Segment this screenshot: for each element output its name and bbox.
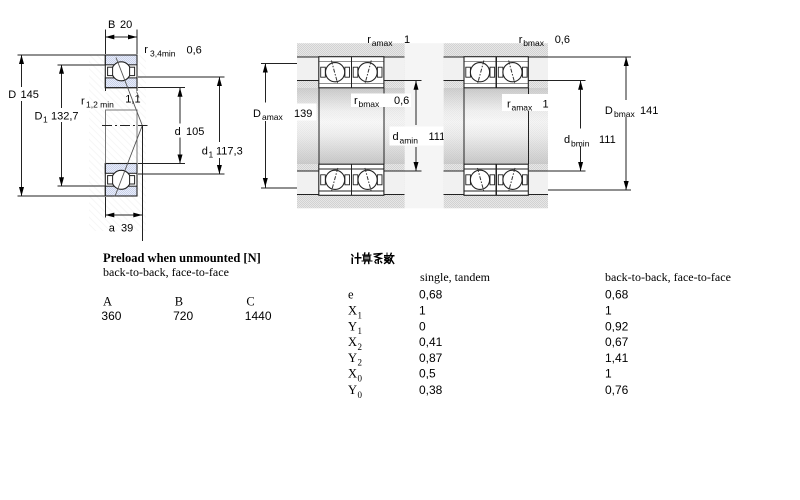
svg-text:e: e <box>348 288 354 302</box>
svg-text:bmax: bmax <box>359 99 381 109</box>
svg-text:360: 360 <box>101 309 121 323</box>
svg-text:132,7: 132,7 <box>51 111 79 123</box>
svg-text:X: X <box>348 335 357 349</box>
svg-text:0: 0 <box>358 373 363 383</box>
svg-text:amax: amax <box>262 112 284 122</box>
svg-text:1: 1 <box>605 304 612 318</box>
svg-text:single, tandem: single, tandem <box>420 270 491 284</box>
svg-text:0,41: 0,41 <box>419 335 443 349</box>
svg-text:X: X <box>348 367 357 381</box>
svg-text:Preload when unmounted [N]: Preload when unmounted [N] <box>103 251 261 265</box>
svg-text:117,3: 117,3 <box>216 146 243 158</box>
svg-text:0: 0 <box>419 319 426 333</box>
svg-text:bmax: bmax <box>523 38 545 48</box>
svg-text:d: d <box>202 146 208 158</box>
svg-text:back-to-back, face-to-face: back-to-back, face-to-face <box>103 265 229 279</box>
svg-text:0,67: 0,67 <box>605 335 629 349</box>
svg-text:0,5: 0,5 <box>419 367 436 381</box>
svg-text:1440: 1440 <box>245 309 272 323</box>
svg-text:d: d <box>175 126 181 138</box>
svg-text:141: 141 <box>640 105 658 117</box>
svg-text:d: d <box>393 131 399 143</box>
svg-text:X: X <box>348 304 357 318</box>
svg-text:1: 1 <box>358 310 363 320</box>
svg-text:0: 0 <box>358 390 363 400</box>
svg-text:0,68: 0,68 <box>605 288 629 302</box>
svg-text:0,6: 0,6 <box>187 45 202 57</box>
svg-text:r: r <box>144 44 148 56</box>
svg-text:139: 139 <box>294 108 312 120</box>
svg-text:r: r <box>354 95 358 107</box>
svg-text:105: 105 <box>186 126 204 138</box>
svg-text:3,4min: 3,4min <box>150 49 176 59</box>
svg-text:1: 1 <box>543 99 549 111</box>
svg-text:amax: amax <box>512 103 534 113</box>
svg-text:1,2 min: 1,2 min <box>86 100 114 110</box>
svg-text:Y: Y <box>348 383 357 397</box>
svg-text:0,92: 0,92 <box>605 319 629 333</box>
svg-text:amax: amax <box>372 38 394 48</box>
svg-text:1: 1 <box>358 326 363 336</box>
svg-text:1: 1 <box>404 34 410 46</box>
svg-text:0,38: 0,38 <box>419 383 443 397</box>
svg-text:B: B <box>108 19 115 31</box>
svg-text:Y: Y <box>348 351 357 365</box>
svg-text:bmin: bmin <box>571 139 590 149</box>
svg-text:1: 1 <box>419 304 426 318</box>
svg-text:111: 111 <box>599 134 616 146</box>
svg-text:1: 1 <box>209 150 214 160</box>
svg-text:Y: Y <box>348 319 357 333</box>
svg-text:bmax: bmax <box>614 109 636 119</box>
svg-text:0,6: 0,6 <box>555 34 570 46</box>
svg-text:2: 2 <box>358 342 363 352</box>
svg-text:D: D <box>35 111 43 123</box>
svg-text:111: 111 <box>429 131 446 143</box>
svg-text:145: 145 <box>21 89 39 101</box>
svg-text:a: a <box>109 223 116 235</box>
svg-text:r: r <box>81 96 85 108</box>
svg-text:0,76: 0,76 <box>605 383 629 397</box>
svg-text:C: C <box>246 295 254 309</box>
svg-text:D: D <box>8 89 16 101</box>
svg-text:B: B <box>175 295 183 309</box>
svg-text:1,41: 1,41 <box>605 351 629 365</box>
svg-text:r: r <box>519 34 523 46</box>
svg-text:0,68: 0,68 <box>419 288 443 302</box>
svg-text:D: D <box>253 108 261 120</box>
svg-text:r: r <box>507 99 511 111</box>
svg-text:1: 1 <box>43 115 48 125</box>
svg-text:A: A <box>103 295 112 309</box>
svg-text:amin: amin <box>400 136 419 146</box>
svg-text:2: 2 <box>358 358 363 368</box>
svg-text:0,6: 0,6 <box>394 95 409 107</box>
svg-text:720: 720 <box>173 309 193 323</box>
svg-text:39: 39 <box>121 223 133 235</box>
svg-text:r: r <box>367 34 371 46</box>
svg-text:20: 20 <box>120 19 132 31</box>
svg-text:back-to-back, face-to-face: back-to-back, face-to-face <box>605 270 731 284</box>
svg-text:d: d <box>564 134 570 146</box>
svg-text:0,87: 0,87 <box>419 351 443 365</box>
svg-text:D: D <box>605 105 613 117</box>
svg-text:1: 1 <box>605 367 612 381</box>
